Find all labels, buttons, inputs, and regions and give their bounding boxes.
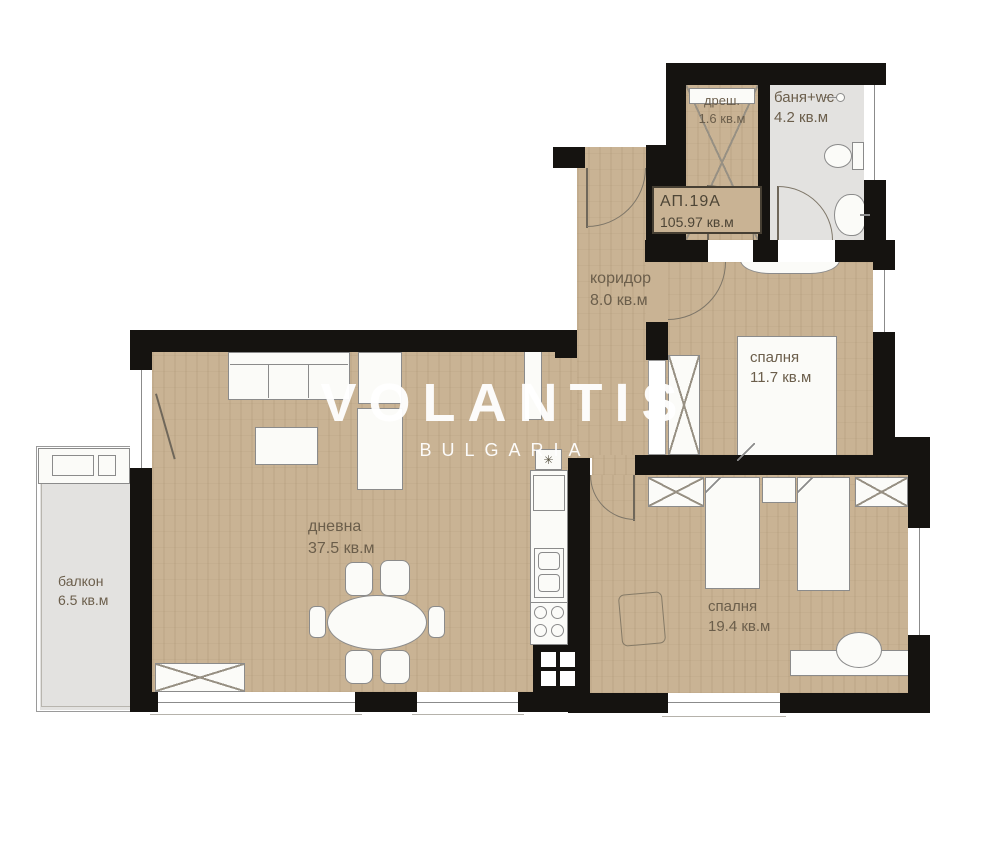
room-label-closet: дреш. 1.6 кв.м (686, 92, 758, 127)
dining-chair (345, 562, 373, 596)
bedroom2-side-window (908, 528, 930, 635)
room-area: 37.5 кв.м (308, 538, 375, 560)
dining-chair (380, 650, 410, 684)
burner (551, 624, 564, 637)
wall (355, 692, 417, 712)
room-name: спалня (708, 597, 770, 617)
sofa-back-line (230, 364, 348, 365)
wall (908, 437, 930, 528)
dining-table (327, 595, 427, 650)
low-cabinet (155, 663, 245, 692)
room-area: 11.7 кв.м (750, 368, 811, 388)
fridge (533, 475, 565, 511)
burner (551, 606, 564, 619)
sink-bowl (538, 574, 560, 592)
wall (873, 332, 895, 437)
room-area: 8.0 кв.м (590, 290, 651, 312)
watermark-subtitle: BULGARIA (295, 440, 715, 461)
burner (534, 624, 547, 637)
room-name: баня+wc (774, 88, 834, 108)
dining-chair (309, 606, 326, 638)
room-label-bath: баня+wc 4.2 кв.м (774, 88, 834, 129)
toilet-icon (824, 144, 852, 168)
living-room-window-right (417, 694, 518, 709)
room-name: дневна (308, 516, 375, 538)
room-area: 6.5 кв.м (58, 591, 108, 610)
sink-bowl (538, 552, 560, 570)
dining-chair (380, 560, 410, 596)
room-label-bedroom2: спалня 19.4 кв.м (708, 597, 770, 638)
wall (864, 180, 886, 242)
room-label-bedroom1: спалня 11.7 кв.м (750, 348, 811, 389)
single-bed (797, 477, 850, 591)
bed-fold (797, 477, 813, 493)
sofa-divider (268, 365, 269, 398)
apartment-label: АП.19А 105.97 кв.м (652, 186, 762, 234)
watermark-brand: VOLANTIS (295, 372, 715, 434)
bathroom-door-opening (778, 240, 835, 262)
apartment-area: 105.97 кв.м (660, 213, 754, 232)
dining-chair (345, 650, 373, 684)
wall (130, 330, 577, 352)
burner (534, 606, 547, 619)
wardrobe (648, 477, 704, 507)
wall (645, 240, 895, 262)
ac-unit-detail (98, 455, 116, 476)
apartment-id: АП.19А (660, 191, 754, 213)
balcony-door-opening (130, 370, 152, 468)
window-sill (150, 714, 362, 715)
wall (646, 322, 668, 360)
wall (873, 242, 895, 270)
ac-unit-detail (52, 455, 94, 476)
wardrobe (855, 477, 908, 507)
floor-plan: ✳ АП.19А 105.97 кв.м дреш. 1.6 кв.м баня… (0, 0, 1000, 842)
sink-tap (860, 214, 870, 216)
bedroom1-window (873, 270, 895, 332)
wall (130, 468, 152, 712)
vent-shaft-cell (560, 671, 575, 686)
wall (780, 693, 930, 713)
room-label-balcony: балкон 6.5 кв.м (58, 572, 108, 610)
wall (130, 330, 152, 370)
room-name: балкон (58, 572, 108, 591)
single-bed (705, 477, 760, 589)
bathroom-window (864, 85, 884, 180)
nightstand (762, 477, 796, 503)
toilet-tank (852, 142, 864, 170)
dining-chair (428, 606, 445, 638)
desk-chair (836, 632, 882, 668)
shower-head-icon (836, 93, 845, 102)
bed-fold (705, 477, 721, 493)
room-area: 19.4 кв.м (708, 617, 770, 637)
wall (666, 63, 886, 85)
bed-fold (737, 443, 755, 461)
chair-outline (618, 591, 666, 647)
room-name: спалня (750, 348, 811, 368)
room-name: коридор (590, 268, 651, 290)
wall (553, 147, 585, 168)
room-area: 1.6 кв.м (686, 110, 758, 128)
living-room-window-left (158, 694, 355, 709)
room-label-corridor: коридор 8.0 кв.м (590, 268, 651, 311)
window-sill (412, 714, 524, 715)
room-name: дреш. (686, 92, 758, 110)
vent-shaft-cell (560, 652, 575, 667)
wall (666, 85, 686, 262)
watermark: VOLANTIS BULGARIA (295, 372, 715, 461)
wall (130, 692, 158, 712)
vent-shaft-cell (541, 652, 556, 667)
wall (555, 352, 577, 358)
closet-door-opening (708, 240, 753, 262)
bedroom2-bottom-window (668, 695, 780, 709)
room-label-living: дневна 37.5 кв.м (308, 516, 375, 559)
vent-shaft-cell (541, 671, 556, 686)
room-area: 4.2 кв.м (774, 108, 834, 128)
window-sill (662, 716, 786, 717)
